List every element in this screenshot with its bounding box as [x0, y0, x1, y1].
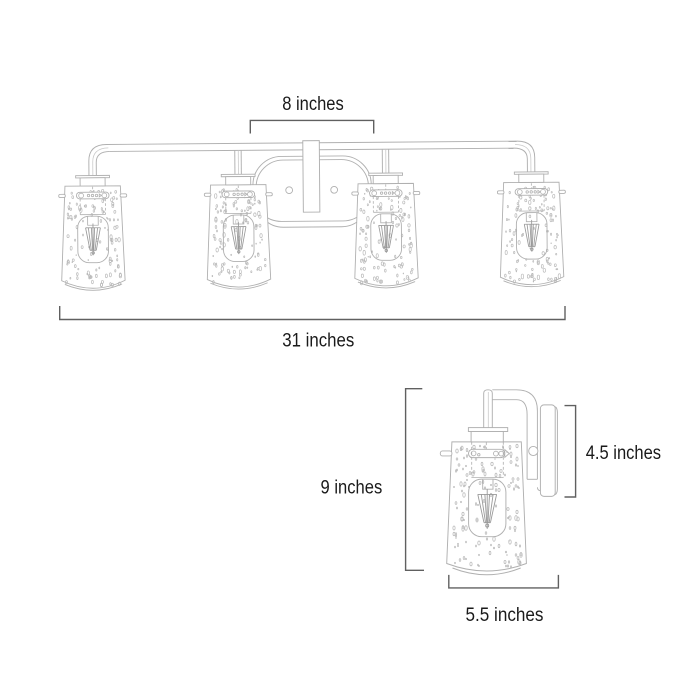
svg-text:5.5 inches: 5.5 inches [466, 605, 544, 626]
svg-text:31 inches: 31 inches [282, 331, 354, 352]
svg-text:4.5 inches: 4.5 inches [586, 443, 661, 464]
svg-text:8 inches: 8 inches [282, 94, 344, 115]
svg-text:9 inches: 9 inches [321, 477, 383, 498]
